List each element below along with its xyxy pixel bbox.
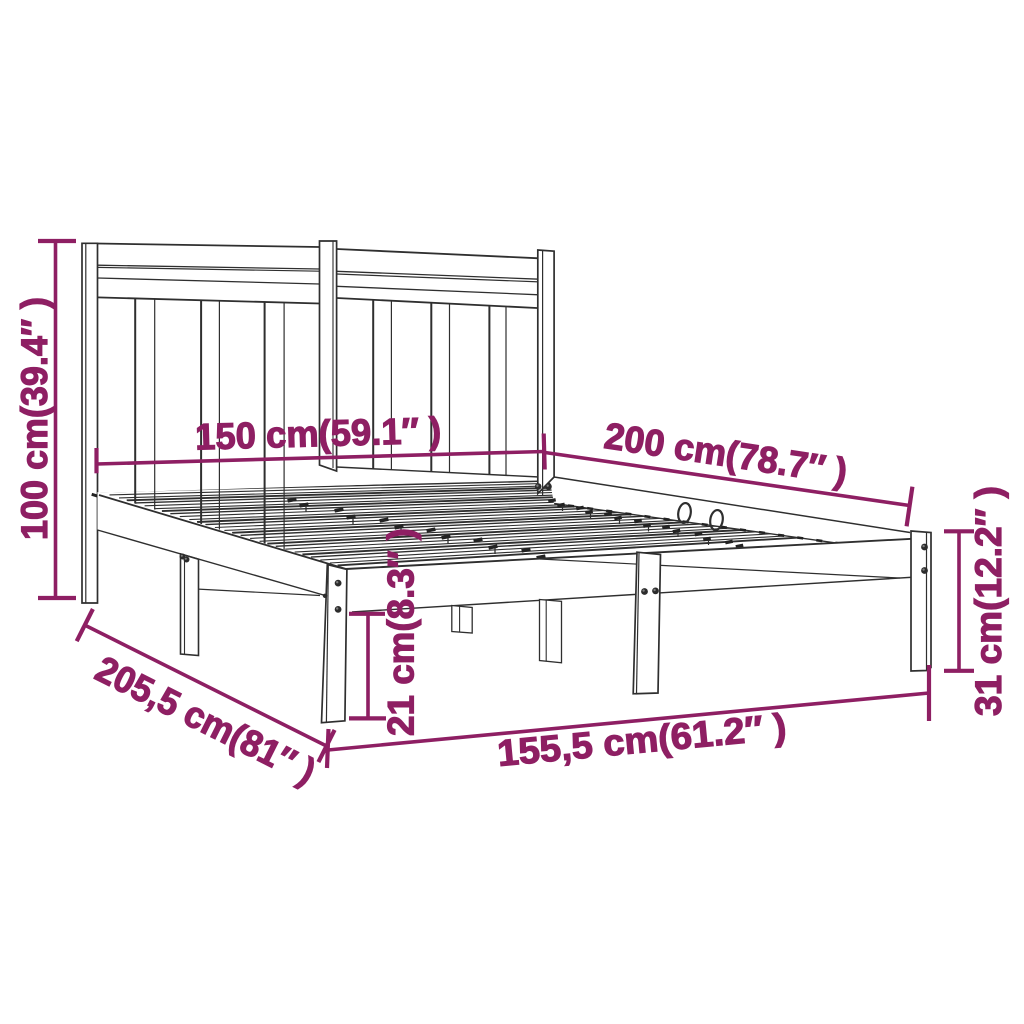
svg-text:150 cm(59.1″ ): 150 cm(59.1″ ) [195, 410, 442, 458]
svg-text:31 cm(12.2″ ): 31 cm(12.2″ ) [968, 486, 1009, 716]
svg-text:21 cm(8.3″ ): 21 cm(8.3″ ) [381, 528, 422, 736]
svg-text:100 cm(39.4″ ): 100 cm(39.4″ ) [14, 297, 55, 540]
